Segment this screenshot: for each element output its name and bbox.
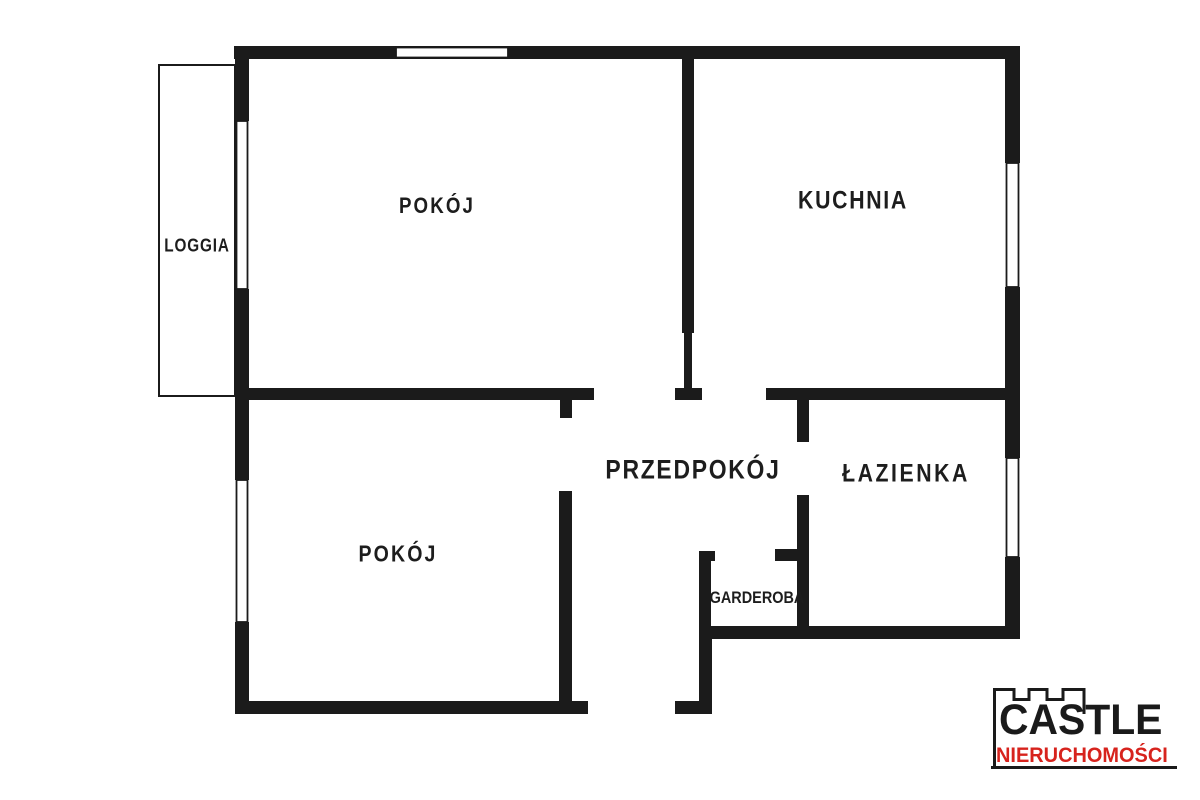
wall-divider-pokoj-kuchnia-foot: [675, 388, 702, 400]
room-label-loggia: LOGGIA: [164, 236, 229, 257]
wall-divider-pokoj-kuchnia-thin: [684, 333, 692, 389]
window-right-kuchnia: [1007, 163, 1019, 287]
floor-plan-page: POKÓJ KUCHNIA LOGGIA PRZEDPOKÓJ ŁAZIENKA…: [0, 0, 1200, 800]
wall-pokoj2-foot: [556, 701, 586, 714]
wall-left-middle: [235, 289, 249, 480]
wall-left-upper: [235, 46, 249, 121]
wall-top: [234, 46, 1020, 59]
room-label-przedpokoj: PRZEDPOKÓJ: [605, 455, 780, 486]
wall-pokoj2-przedpokoj: [559, 491, 572, 702]
wall-right-middle: [1005, 287, 1020, 458]
wall-garderoba-stub-left: [699, 551, 715, 561]
wall-right-upper: [1005, 46, 1020, 163]
wall-mid-horizontal-right: [766, 388, 1005, 400]
window-right-lazienka: [1007, 458, 1019, 557]
wall-lazienka-left-upper: [797, 400, 809, 442]
window-top: [396, 48, 508, 58]
window-left-lower: [237, 480, 248, 622]
room-label-garderoba: GARDEROBA: [710, 588, 805, 608]
floor-plan-canvas: [0, 0, 1200, 800]
room-label-pokoj-top: POKÓJ: [399, 193, 475, 219]
window-left-upper: [237, 121, 248, 289]
logo-brand-text: CASTLE: [999, 701, 1162, 739]
loggia-outline: [159, 65, 235, 396]
wall-pokoj2-door-jamb: [560, 400, 572, 418]
logo-tagline-text: NIERUCHOMOŚCI: [996, 745, 1168, 766]
room-label-kuchnia: KUCHNIA: [798, 187, 908, 216]
wall-entrance-side: [699, 627, 712, 714]
room-label-lazienka: ŁAZIENKA: [842, 460, 970, 489]
wall-garderoba-stub-right: [775, 549, 797, 561]
wall-bottom: [235, 701, 588, 714]
wall-divider-pokoj-kuchnia: [682, 59, 694, 333]
wall-mid-horizontal-left: [249, 388, 594, 400]
room-label-pokoj-bottom: POKÓJ: [358, 541, 437, 568]
wall-bottom-right: [699, 626, 1020, 639]
wall-right-lower: [1005, 557, 1020, 639]
wall-left-lower: [235, 622, 249, 714]
